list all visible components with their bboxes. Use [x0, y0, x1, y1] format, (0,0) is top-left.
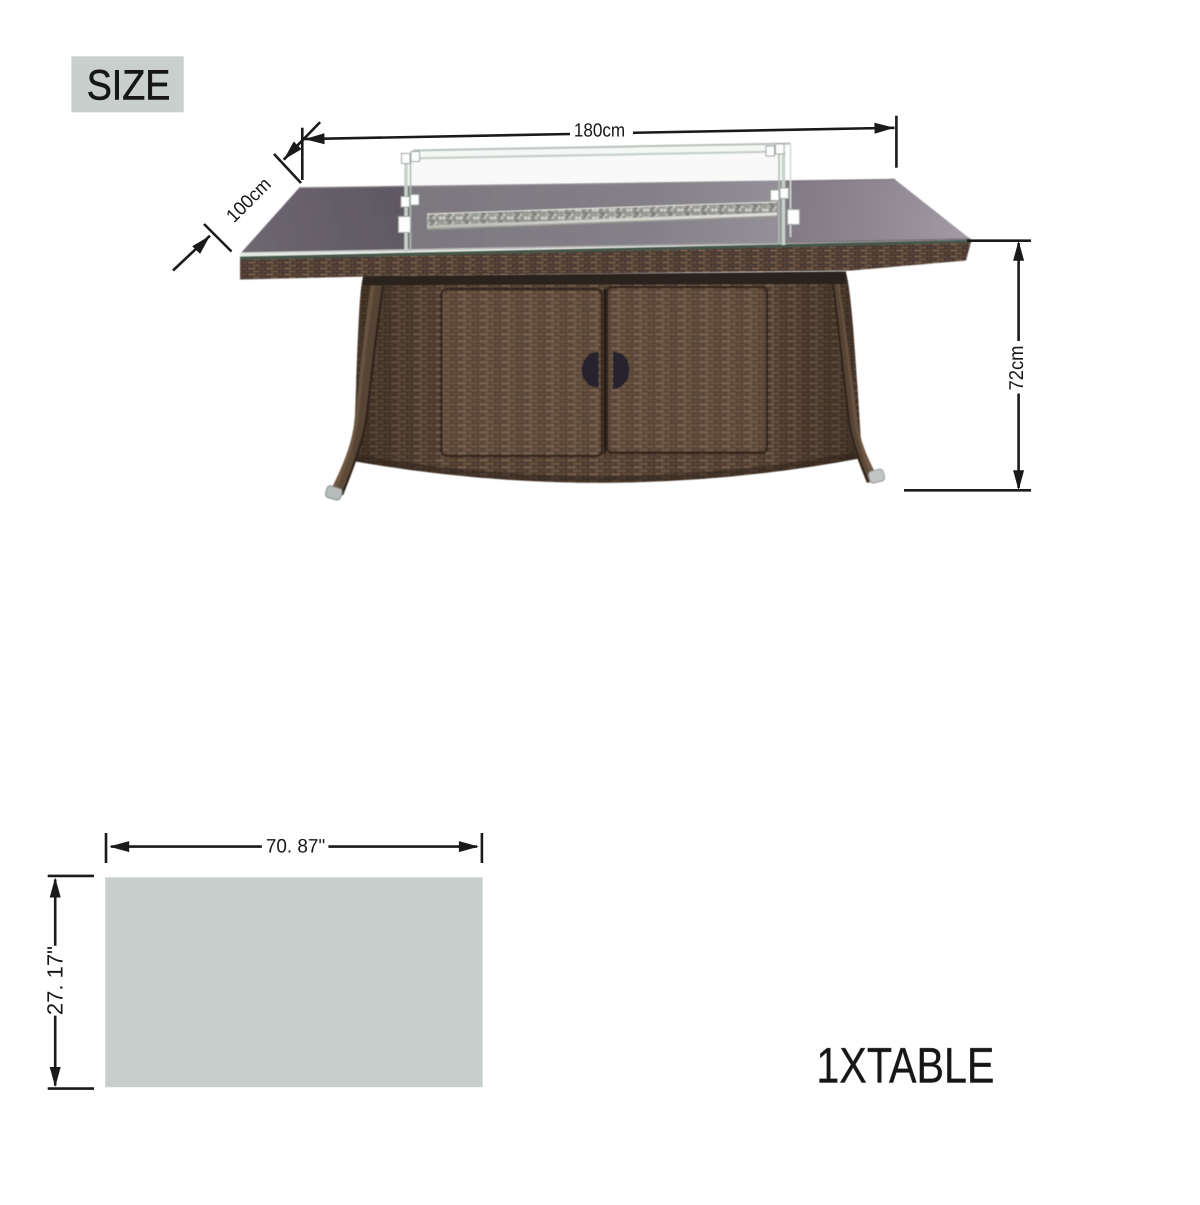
svg-text:27. 17": 27. 17" — [43, 946, 68, 1015]
svg-text:SIZE: SIZE — [87, 63, 171, 110]
svg-text:1XTABLE: 1XTABLE — [816, 1037, 994, 1093]
svg-text:72cm: 72cm — [1006, 346, 1028, 391]
svg-text:180cm: 180cm — [574, 120, 625, 141]
svg-text:70. 87": 70. 87" — [266, 836, 325, 858]
